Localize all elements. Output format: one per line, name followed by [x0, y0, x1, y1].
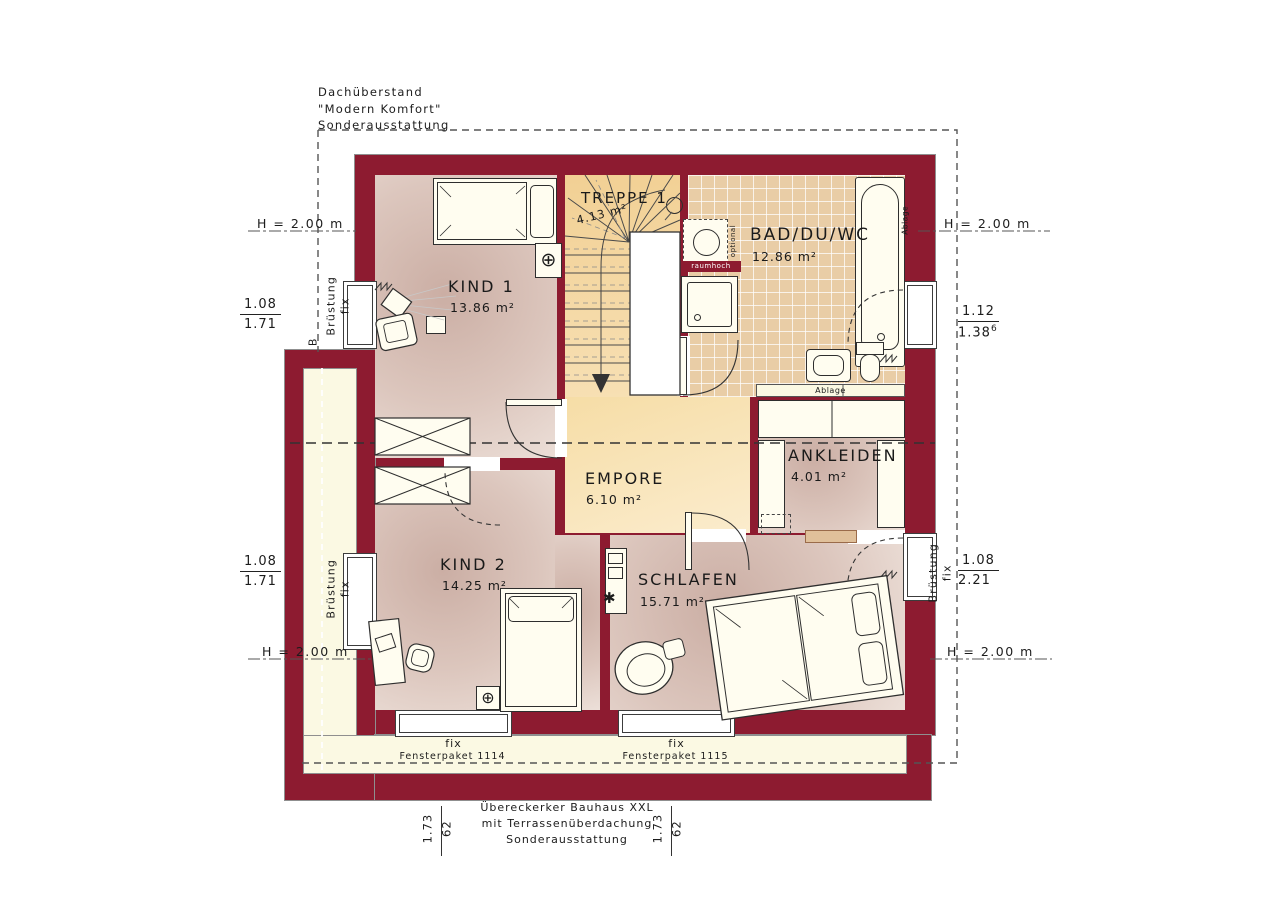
room-area-bad: 12.86 m² — [752, 250, 817, 264]
sill-dim-right-mid: 1.08 2.21 — [958, 553, 999, 588]
room-schlafen-floor — [610, 535, 905, 710]
height-label-right-bottom: H = 2.00 m — [947, 645, 1034, 659]
sill-dim-left-top: 1.08 1.71 — [240, 297, 281, 332]
height-label-left-top: H = 2.00 m — [257, 217, 344, 231]
room-area-empore: 6.10 m² — [586, 493, 642, 507]
height-label-right-top: H = 2.00 m — [944, 217, 1031, 231]
door-opening-schlafen — [688, 529, 746, 542]
raumhoch-label: raumhoch — [681, 262, 741, 270]
section-letter: B — [307, 339, 320, 347]
room-label-bad: BAD/DU/WC — [750, 226, 870, 246]
room-label-kind1: KIND 1 — [448, 278, 515, 296]
window-fix-1114 — [395, 710, 512, 737]
plant-symbol: ✱ — [603, 590, 616, 607]
room-empore-floor — [565, 397, 750, 533]
door-opening-kind2 — [444, 457, 500, 471]
wardrobe-ankleiden-top — [758, 400, 905, 438]
shower-drain — [694, 314, 701, 321]
height-label-left-bottom: H = 2.00 m — [262, 645, 349, 659]
washbasin-bowl — [813, 355, 844, 376]
dresser-drawer-2 — [608, 567, 623, 579]
door-closer-symbol — [666, 197, 683, 214]
optional-label: optional — [729, 221, 737, 261]
bed-kind1-mattress — [437, 182, 527, 240]
room-area-kind1: 13.86 m² — [450, 301, 515, 315]
sill-dim-left-mid: 1.08 1.71 — [240, 554, 281, 589]
room-label-schlafen: SCHLAFEN — [638, 571, 739, 589]
radiator-kind2: ⊕ — [476, 686, 500, 710]
optional-cabinet — [761, 514, 791, 534]
bathtub-drain — [877, 333, 885, 341]
fensterpaket-1115-label: Fensterpaket 1115 — [608, 752, 743, 763]
window-fix-1115 — [618, 710, 735, 737]
bed-kind1-pillow — [530, 185, 554, 238]
sill-dim-right-top: 1.12 1.386 — [958, 304, 999, 340]
ankleiden-threshold — [805, 530, 857, 543]
parapet-label-right: Brüstungfix — [926, 528, 954, 618]
floor-plan: ⊕ ⊕ ✱ — [0, 0, 1280, 906]
shower-tray — [687, 282, 732, 327]
dim-bottom-right-b: 62 — [670, 803, 683, 855]
dresser-drawer-1 — [608, 553, 623, 564]
radiator-kind1: ⊕ — [535, 243, 562, 278]
room-area-ankleiden: 4.01 m² — [791, 470, 847, 484]
side-table-kind1 — [426, 316, 446, 334]
bed-kind2-pillow — [508, 596, 574, 622]
dim-bottom-left-b: 62 — [440, 803, 453, 855]
room-label-ankleiden: ANKLEIDEN — [788, 447, 898, 465]
dim-bottom-left-a: 1.73 — [421, 803, 434, 855]
fix-label-1: fix — [400, 738, 507, 751]
fensterpaket-1114-label: Fensterpaket 1114 — [385, 752, 520, 763]
wc-bowl — [860, 354, 880, 382]
parapet-label-left-bottom: Brüstungfix — [324, 544, 352, 634]
door-leaf-kind1 — [506, 399, 562, 406]
fix-label-2: fix — [623, 738, 730, 751]
washing-machine-drum — [693, 229, 720, 256]
door-opening-kind1 — [555, 399, 567, 457]
shelf-label-side: Ablage — [902, 200, 911, 240]
bottom-annotation: Übereckerker Bauhaus XXL mit Terrassenüb… — [478, 800, 656, 848]
shelf-label-bottom: Ablage — [756, 386, 905, 395]
room-label-kind2: KIND 2 — [440, 556, 507, 574]
door-leaf-bad — [679, 337, 687, 395]
window-bad — [903, 281, 937, 349]
room-area-schlafen: 15.71 m² — [640, 595, 705, 609]
parapet-label-left-top: Brüstungfix — [324, 261, 352, 351]
room-area-kind2: 14.25 m² — [442, 579, 507, 593]
bathtub-inner — [861, 184, 899, 350]
door-leaf-schlafen — [685, 512, 692, 570]
roof-annotation: Dachüberstand "Modern Komfort" Sonderaus… — [318, 84, 450, 134]
room-label-empore: EMPORE — [585, 470, 664, 488]
